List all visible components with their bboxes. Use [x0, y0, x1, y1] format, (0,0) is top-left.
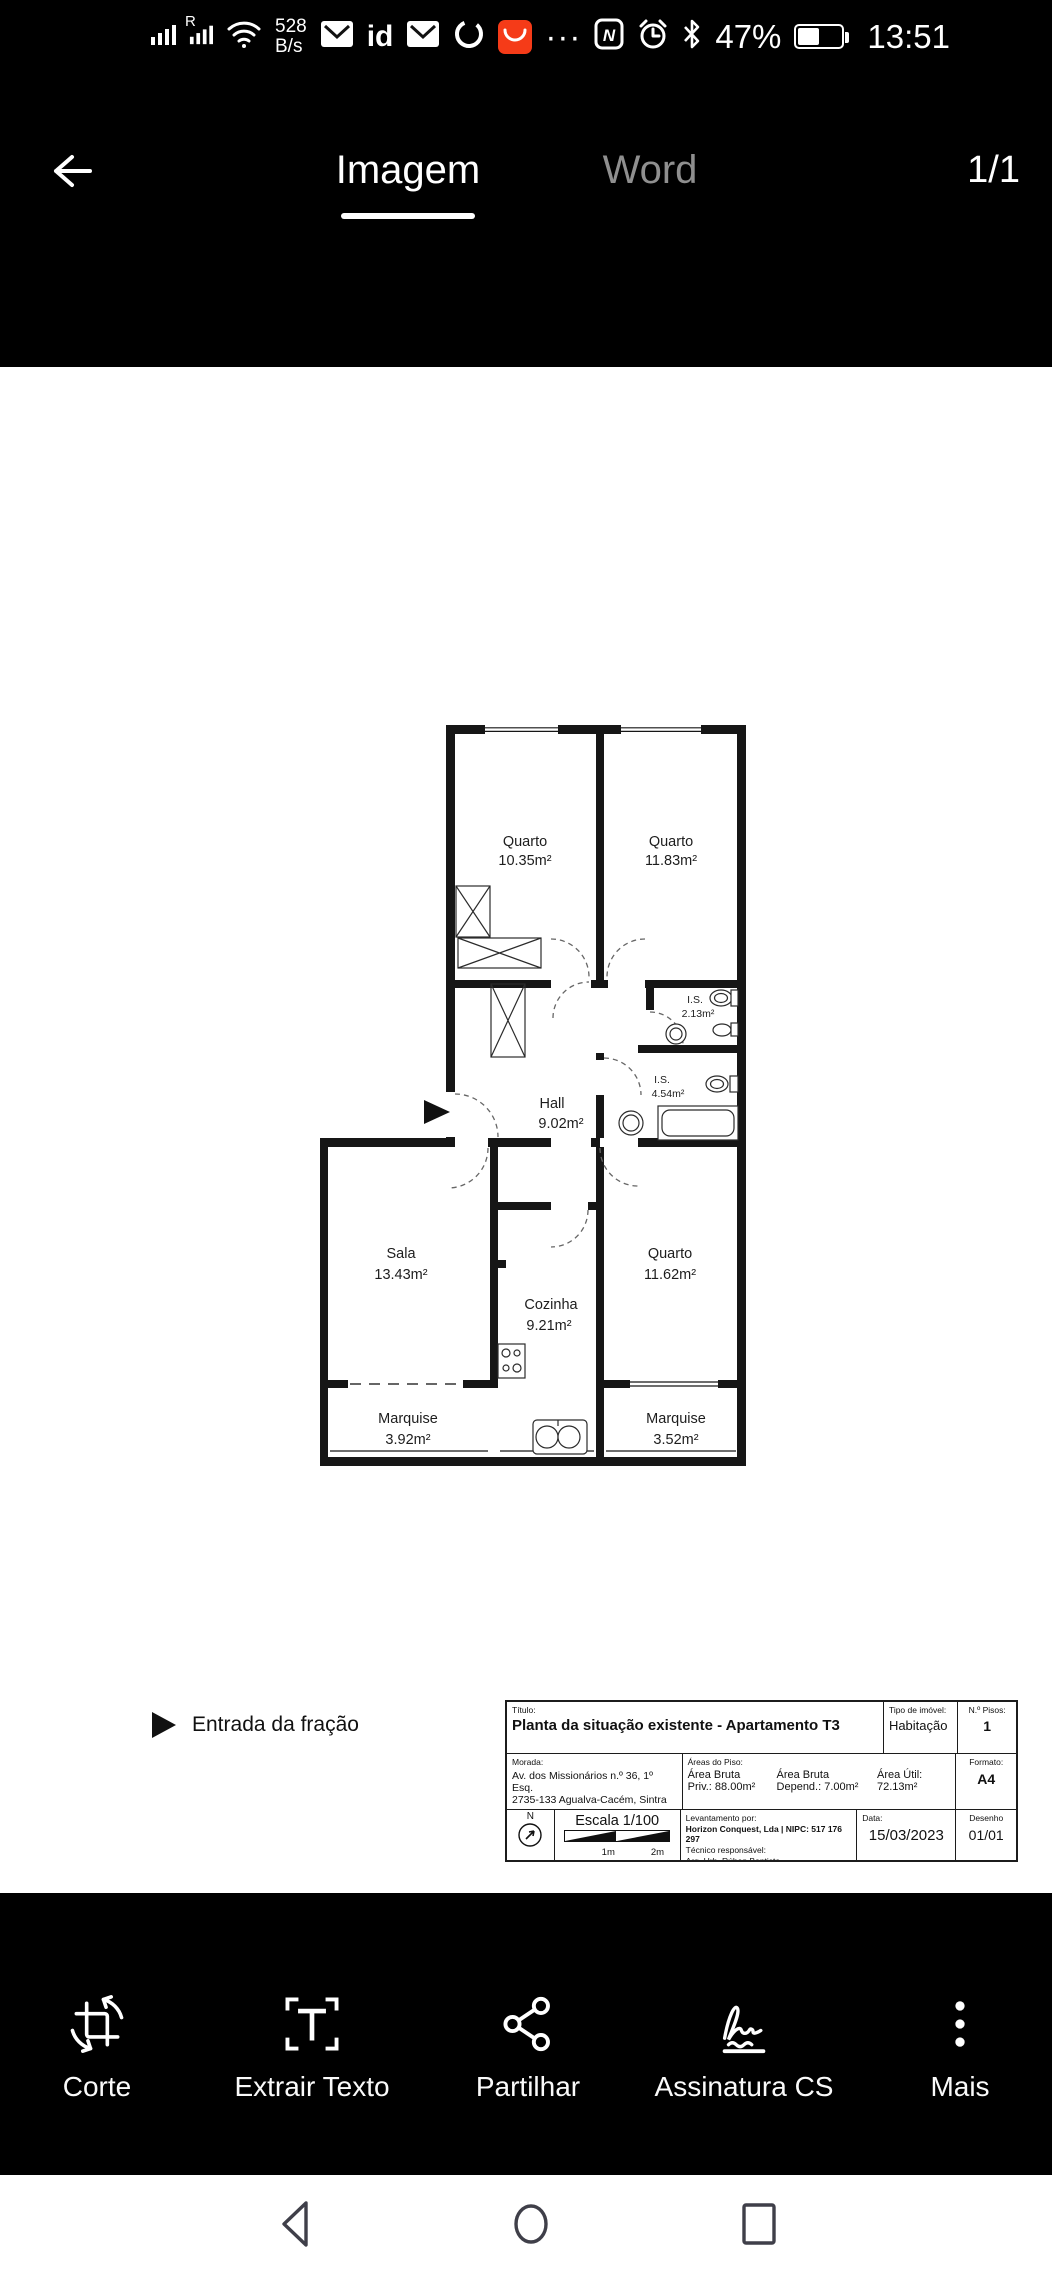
phone-screen: R 528 B/s id ··· N [0, 0, 1052, 2276]
data-label: Data: [862, 1813, 950, 1823]
room-label: I.S. [687, 994, 703, 1006]
morada-label: Morada: [512, 1757, 677, 1767]
battery-percent: 47% [715, 18, 781, 56]
clock-time: 13:51 [867, 18, 950, 56]
tipo-imovel-label: Tipo de imóvel: [889, 1705, 952, 1715]
num-pisos-label: N.º Pisos: [963, 1705, 1011, 1715]
stove-icon [498, 1344, 525, 1378]
id-app-icon: id [367, 20, 394, 54]
wifi-icon [226, 19, 262, 54]
room-area: 11.83m² [645, 853, 697, 869]
levantamento-value: Horizon Conquest, Lda | NIPC: 517 176 29… [686, 1824, 852, 1845]
entrance-arrow-icon [424, 1100, 450, 1124]
more-vertical-icon [929, 1993, 991, 2055]
entrance-legend: Entrada da fração [152, 1712, 359, 1738]
room-area: 13.43m² [374, 1267, 427, 1283]
network-speed: 528 B/s [275, 17, 307, 57]
room-area: 2.13m² [682, 1008, 715, 1020]
area-bruta-dep: Área BrutaDepend.: 7.00m² [777, 1769, 877, 1793]
nav-back-button[interactable] [274, 2198, 322, 2255]
area-util: Área Útil:72.13m² [877, 1769, 950, 1793]
shopping-app-badge-icon [498, 20, 532, 54]
arrow-left-icon [50, 151, 94, 191]
compass-icon [517, 1822, 543, 1848]
svg-text:N: N [603, 26, 616, 45]
scale-2m-label: 2m [651, 1847, 664, 1858]
envelope-icon [320, 20, 354, 53]
morada-line2: 2735-133 Agualva-Cacém, Sintra [512, 1794, 677, 1806]
levantamento-label: Levantamento por: [686, 1813, 852, 1824]
title-block: Título: Planta da situação existente - A… [505, 1700, 1018, 1862]
room-label: Marquise [646, 1411, 706, 1427]
areas-label: Áreas do Piso: [688, 1757, 951, 1767]
signature-label: Assinatura CS [655, 2071, 834, 2103]
room-area: 11.62m² [644, 1267, 696, 1283]
extract-text-label: Extrair Texto [234, 2071, 389, 2103]
room-label: Quarto [503, 834, 547, 850]
scale-bar [564, 1830, 670, 1842]
area-bruta-priv: Área BrutaPriv.: 88.00m² [688, 1769, 777, 1793]
room-label: I.S. [654, 1074, 670, 1086]
entrance-legend-label: Entrada da fração [192, 1713, 359, 1737]
system-nav-bar [0, 2175, 1052, 2276]
more-button[interactable]: Mais [870, 1993, 1050, 2103]
bluetooth-icon [682, 18, 702, 55]
morada-line1: Av. dos Missionários n.º 36, 1º Esq. [512, 1770, 677, 1794]
overflow-dots-icon: ··· [545, 18, 581, 56]
nav-recents-button[interactable] [735, 2198, 783, 2255]
room-label: Sala [386, 1246, 416, 1262]
room-area: 9.02m² [538, 1116, 583, 1132]
signature-icon [713, 1993, 775, 2055]
tipo-imovel-value: Habitação [889, 1718, 952, 1733]
document-preview[interactable]: Quarto 10.35m² Quarto 11.83m² I.S. 2.13m… [0, 367, 1052, 1893]
tab-word[interactable]: Word [570, 148, 730, 193]
scale-1m-label: 1m [602, 1847, 615, 1858]
page-indicator: 1/1 [967, 149, 1020, 192]
north-label: N [512, 1811, 549, 1822]
signature-button[interactable]: Assinatura CS [654, 1993, 834, 2103]
app-header: Imagem Word 1/1 [0, 73, 1052, 367]
crop-rotate-icon [66, 1993, 128, 2055]
envelope-icon [406, 20, 440, 53]
room-label: Cozinha [524, 1297, 578, 1313]
battery-icon [794, 24, 844, 49]
tecnico-label: Técnico responsável: [686, 1845, 852, 1856]
floor-plan: Quarto 10.35m² Quarto 11.83m² I.S. 2.13m… [298, 700, 758, 1480]
escala-value: Escala 1/100 [560, 1813, 675, 1829]
formato-value: A4 [961, 1771, 1011, 1787]
crop-label: Corte [63, 2071, 131, 2103]
share-icon [497, 1993, 559, 2055]
room-label: Quarto [649, 834, 693, 850]
bottom-toolbar: Corte Extrair Texto Partilhar Assinatura… [0, 1893, 1052, 2175]
entrance-arrow-icon [152, 1712, 176, 1738]
roaming-indicator: R [185, 13, 196, 30]
desenho-label: Desenho [961, 1813, 1011, 1823]
nfc-icon: N [594, 18, 624, 55]
status-bar: R 528 B/s id ··· N [0, 0, 1052, 73]
back-button[interactable] [50, 151, 94, 196]
room-area: 3.92m² [385, 1432, 430, 1448]
extract-text-icon [281, 1993, 343, 2055]
wardrobes [456, 886, 541, 1057]
formato-label: Formato: [961, 1757, 1011, 1767]
active-tab-underline [341, 213, 475, 219]
signal-bars-icon [150, 21, 176, 52]
sink-icon [713, 1024, 731, 1036]
share-label: Partilhar [476, 2071, 580, 2103]
num-pisos-value: 1 [963, 1718, 1011, 1734]
room-label: Hall [540, 1096, 565, 1112]
more-label: Mais [930, 2071, 989, 2103]
room-label: Quarto [648, 1246, 692, 1262]
signal-bars-roaming-icon: R [189, 21, 213, 52]
home-circle-icon [507, 2198, 555, 2250]
room-area: 9.21m² [526, 1318, 571, 1334]
tecnico-value: Arq. Urb. Rúben Baptista [686, 1856, 852, 1861]
back-triangle-icon [274, 2198, 322, 2250]
alarm-clock-icon [637, 18, 669, 55]
room-area: 10.35m² [498, 853, 551, 869]
loop-ring-icon [453, 18, 485, 55]
crop-button[interactable]: Corte [7, 1993, 187, 2103]
recents-square-icon [735, 2198, 783, 2250]
room-area: 4.54m² [652, 1088, 685, 1100]
titulo-label: Título: [512, 1705, 878, 1715]
plan-title: Planta da situação existente - Apartamen… [512, 1717, 878, 1734]
tab-imagem[interactable]: Imagem [318, 148, 498, 193]
data-value: 15/03/2023 [862, 1827, 950, 1844]
extract-text-button[interactable]: Extrair Texto [222, 1993, 402, 2103]
desenho-value: 01/01 [961, 1827, 1011, 1843]
room-label: Marquise [378, 1411, 438, 1427]
nav-home-button[interactable] [507, 2198, 555, 2255]
room-area: 3.52m² [653, 1432, 698, 1448]
share-button[interactable]: Partilhar [438, 1993, 618, 2103]
